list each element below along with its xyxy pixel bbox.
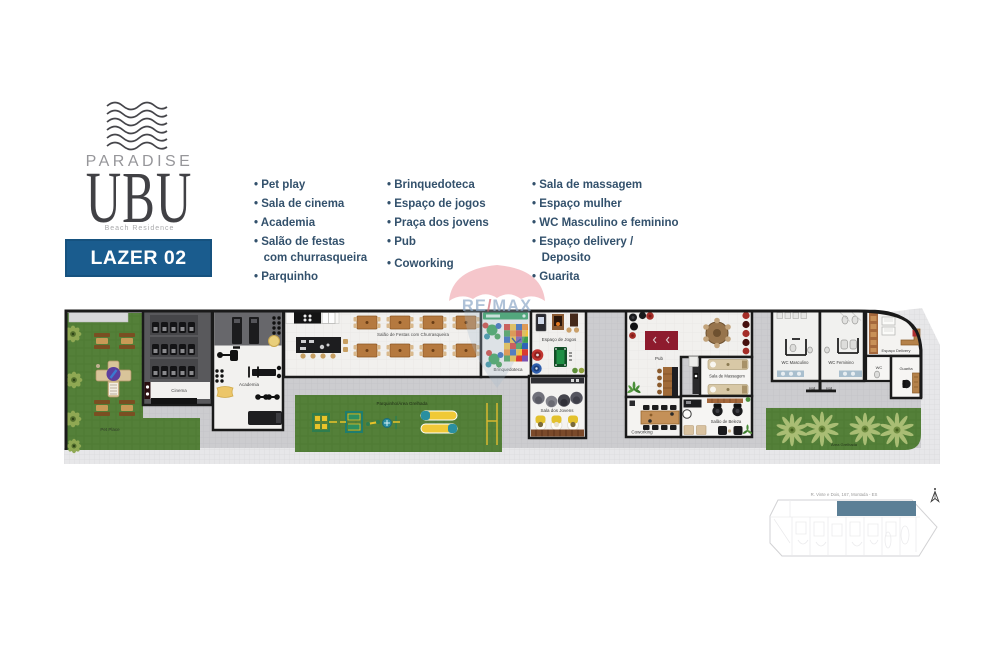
- svg-text:Área Grelhada: Área Grelhada: [831, 442, 858, 447]
- svg-text:Espaço de Jogos: Espaço de Jogos: [542, 337, 577, 342]
- svg-text:WC Feminino: WC Feminino: [828, 360, 854, 365]
- svg-text:WC: WC: [876, 365, 883, 370]
- svg-text:Hall: Hall: [809, 387, 816, 391]
- svg-text:Cinema: Cinema: [171, 388, 187, 393]
- svg-text:Parquinho/Área Grelhada: Parquinho/Área Grelhada: [376, 400, 428, 406]
- svg-text:Coworking: Coworking: [631, 430, 653, 435]
- svg-text:Academia: Academia: [239, 382, 260, 387]
- svg-text:Salão de Festas com Churrasque: Salão de Festas com Churrasqueira: [377, 332, 450, 337]
- svg-text:WC Masculino: WC Masculino: [782, 360, 810, 365]
- svg-text:Pub: Pub: [655, 356, 664, 361]
- svg-text:Espaço Delivery: Espaço Delivery: [882, 348, 911, 353]
- svg-text:Pet Place: Pet Place: [100, 427, 120, 432]
- svg-text:R. Vinte e Dois, 167, Montada: R. Vinte e Dois, 167, Montada - ES: [811, 492, 878, 497]
- svg-text:Sala de Massagem: Sala de Massagem: [709, 374, 745, 379]
- svg-text:Hall: Hall: [826, 387, 833, 391]
- svg-text:Sala dos Jovens: Sala dos Jovens: [540, 408, 574, 413]
- svg-text:Guarita: Guarita: [899, 366, 913, 371]
- svg-text:Salão de Beleza: Salão de Beleza: [711, 419, 742, 424]
- svg-text:RE/MAX: RE/MAX: [462, 297, 532, 315]
